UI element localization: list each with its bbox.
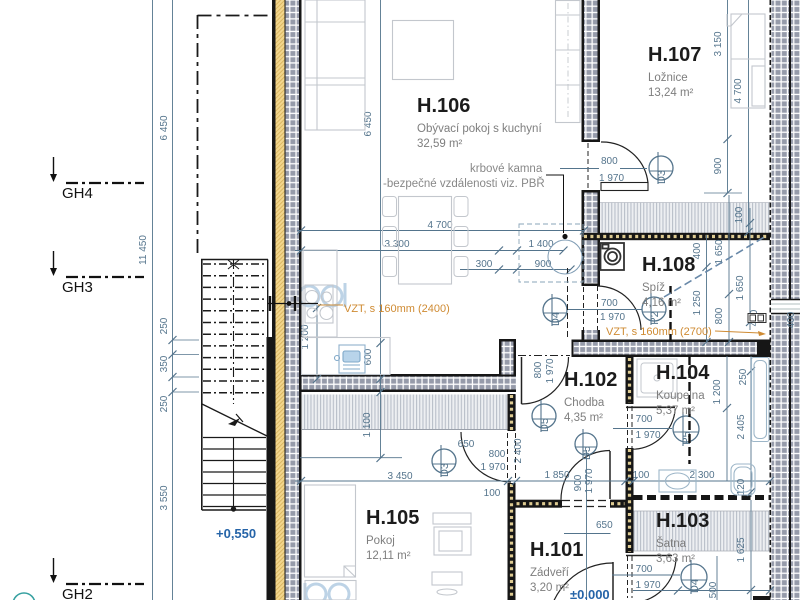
svg-text:H.106: H.106 — [417, 95, 470, 117]
svg-text:350: 350 — [159, 355, 170, 372]
svg-text:-bezpečné vzdálenosti viz. PBŘ: -bezpečné vzdálenosti viz. PBŘ — [383, 177, 545, 190]
svg-text:1 850: 1 850 — [544, 470, 569, 481]
svg-text:VZT, s 160mm (2700): VZT, s 160mm (2700) — [606, 326, 712, 338]
svg-text:3 450: 3 450 — [387, 471, 412, 482]
svg-text:120: 120 — [736, 478, 747, 495]
svg-text:700: 700 — [601, 298, 618, 309]
svg-text:4 700: 4 700 — [427, 220, 452, 231]
svg-text:+0,550: +0,550 — [216, 526, 256, 541]
svg-text:Pokoj: Pokoj — [366, 535, 395, 547]
svg-text:1 625: 1 625 — [736, 537, 747, 562]
svg-text:1 100: 1 100 — [362, 412, 373, 437]
svg-text:100: 100 — [633, 470, 650, 481]
svg-text:250: 250 — [159, 395, 170, 412]
svg-text:1 650: 1 650 — [714, 239, 725, 264]
svg-text:650: 650 — [458, 439, 475, 450]
svg-text:P2: P2 — [649, 311, 661, 324]
svg-text:Chodba: Chodba — [564, 397, 605, 409]
svg-text:3 300: 3 300 — [384, 239, 409, 250]
svg-text:1 200: 1 200 — [712, 379, 723, 404]
svg-text:1 970: 1 970 — [584, 468, 595, 493]
svg-text:13,24 m²: 13,24 m² — [648, 87, 694, 99]
svg-text:400: 400 — [786, 311, 797, 328]
svg-text:H.108: H.108 — [642, 254, 695, 276]
svg-text:4 700: 4 700 — [733, 78, 744, 103]
svg-text:800: 800 — [489, 449, 506, 460]
svg-text:Šatna: Šatna — [656, 537, 687, 550]
svg-text:krbové kamna: krbové kamna — [470, 163, 543, 175]
svg-text:12,11 m²: 12,11 m² — [366, 550, 411, 562]
svg-text:800: 800 — [533, 361, 544, 378]
svg-text:P5: P5 — [681, 431, 693, 444]
svg-text:Koupelna: Koupelna — [656, 390, 705, 402]
svg-text:1 970: 1 970 — [480, 462, 505, 473]
svg-text:900: 900 — [573, 474, 584, 491]
svg-text:D5: D5 — [539, 418, 551, 432]
svg-text:VZT, s 160mm (2400): VZT, s 160mm (2400) — [344, 303, 450, 315]
svg-text:H.107: H.107 — [648, 44, 701, 66]
svg-text:GH4: GH4 — [62, 185, 93, 202]
svg-text:D3: D3 — [439, 463, 451, 477]
svg-text:650: 650 — [596, 520, 613, 531]
svg-text:32,59 m²: 32,59 m² — [417, 138, 463, 150]
svg-text:H.102: H.102 — [564, 369, 617, 391]
svg-text:300: 300 — [476, 259, 493, 270]
svg-text:Ložnice: Ložnice — [648, 72, 688, 84]
svg-text:Obývací pokoj s kuchyní: Obývací pokoj s kuchyní — [417, 123, 542, 135]
svg-text:GH2: GH2 — [62, 586, 93, 600]
svg-text:1 970: 1 970 — [635, 430, 660, 441]
svg-text:2 405: 2 405 — [736, 414, 747, 439]
svg-text:1 970: 1 970 — [635, 580, 660, 591]
svg-text:11 450: 11 450 — [138, 235, 149, 265]
svg-text:2 400: 2 400 — [513, 438, 524, 463]
svg-text:6 450: 6 450 — [159, 115, 170, 140]
svg-text:H.105: H.105 — [366, 507, 419, 529]
svg-text:3 150: 3 150 — [713, 31, 724, 56]
svg-text:3,63 m²: 3,63 m² — [656, 553, 695, 565]
svg-text:H.101: H.101 — [530, 539, 583, 561]
svg-text:Zádveří: Zádveří — [530, 567, 570, 579]
svg-text:1 970: 1 970 — [600, 312, 625, 323]
svg-text:H.103: H.103 — [656, 510, 709, 532]
svg-text:250: 250 — [738, 368, 749, 385]
svg-text:800: 800 — [714, 307, 725, 324]
svg-text:3,20 m²: 3,20 m² — [530, 582, 569, 594]
svg-text:900: 900 — [713, 157, 724, 174]
svg-text:500: 500 — [708, 581, 719, 598]
svg-text:±0,000: ±0,000 — [570, 587, 610, 600]
svg-text:700: 700 — [636, 564, 653, 575]
svg-text:100: 100 — [734, 206, 745, 223]
svg-text:3 550: 3 550 — [159, 485, 170, 510]
svg-text:1 970: 1 970 — [599, 173, 624, 184]
svg-text:4,35 m²: 4,35 m² — [564, 412, 603, 424]
svg-text:1 250: 1 250 — [692, 290, 703, 315]
svg-text:Spíž: Spíž — [642, 282, 665, 294]
svg-text:1 970: 1 970 — [545, 358, 556, 383]
svg-text:1 650: 1 650 — [735, 275, 746, 300]
svg-text:4,16 m²: 4,16 m² — [642, 297, 681, 309]
svg-text:2 300: 2 300 — [689, 470, 714, 481]
svg-text:GH3: GH3 — [62, 279, 93, 296]
svg-text:D5: D5 — [581, 446, 593, 460]
svg-text:H.104: H.104 — [656, 362, 710, 384]
svg-text:800: 800 — [601, 156, 618, 167]
svg-text:D4: D4 — [550, 312, 562, 326]
svg-text:5,37 m²: 5,37 m² — [656, 405, 695, 417]
svg-text:D3: D3 — [656, 170, 668, 184]
svg-text:100: 100 — [484, 488, 501, 499]
svg-text:D4: D4 — [689, 579, 701, 593]
svg-text:250: 250 — [159, 317, 170, 334]
svg-text:700: 700 — [636, 414, 653, 425]
